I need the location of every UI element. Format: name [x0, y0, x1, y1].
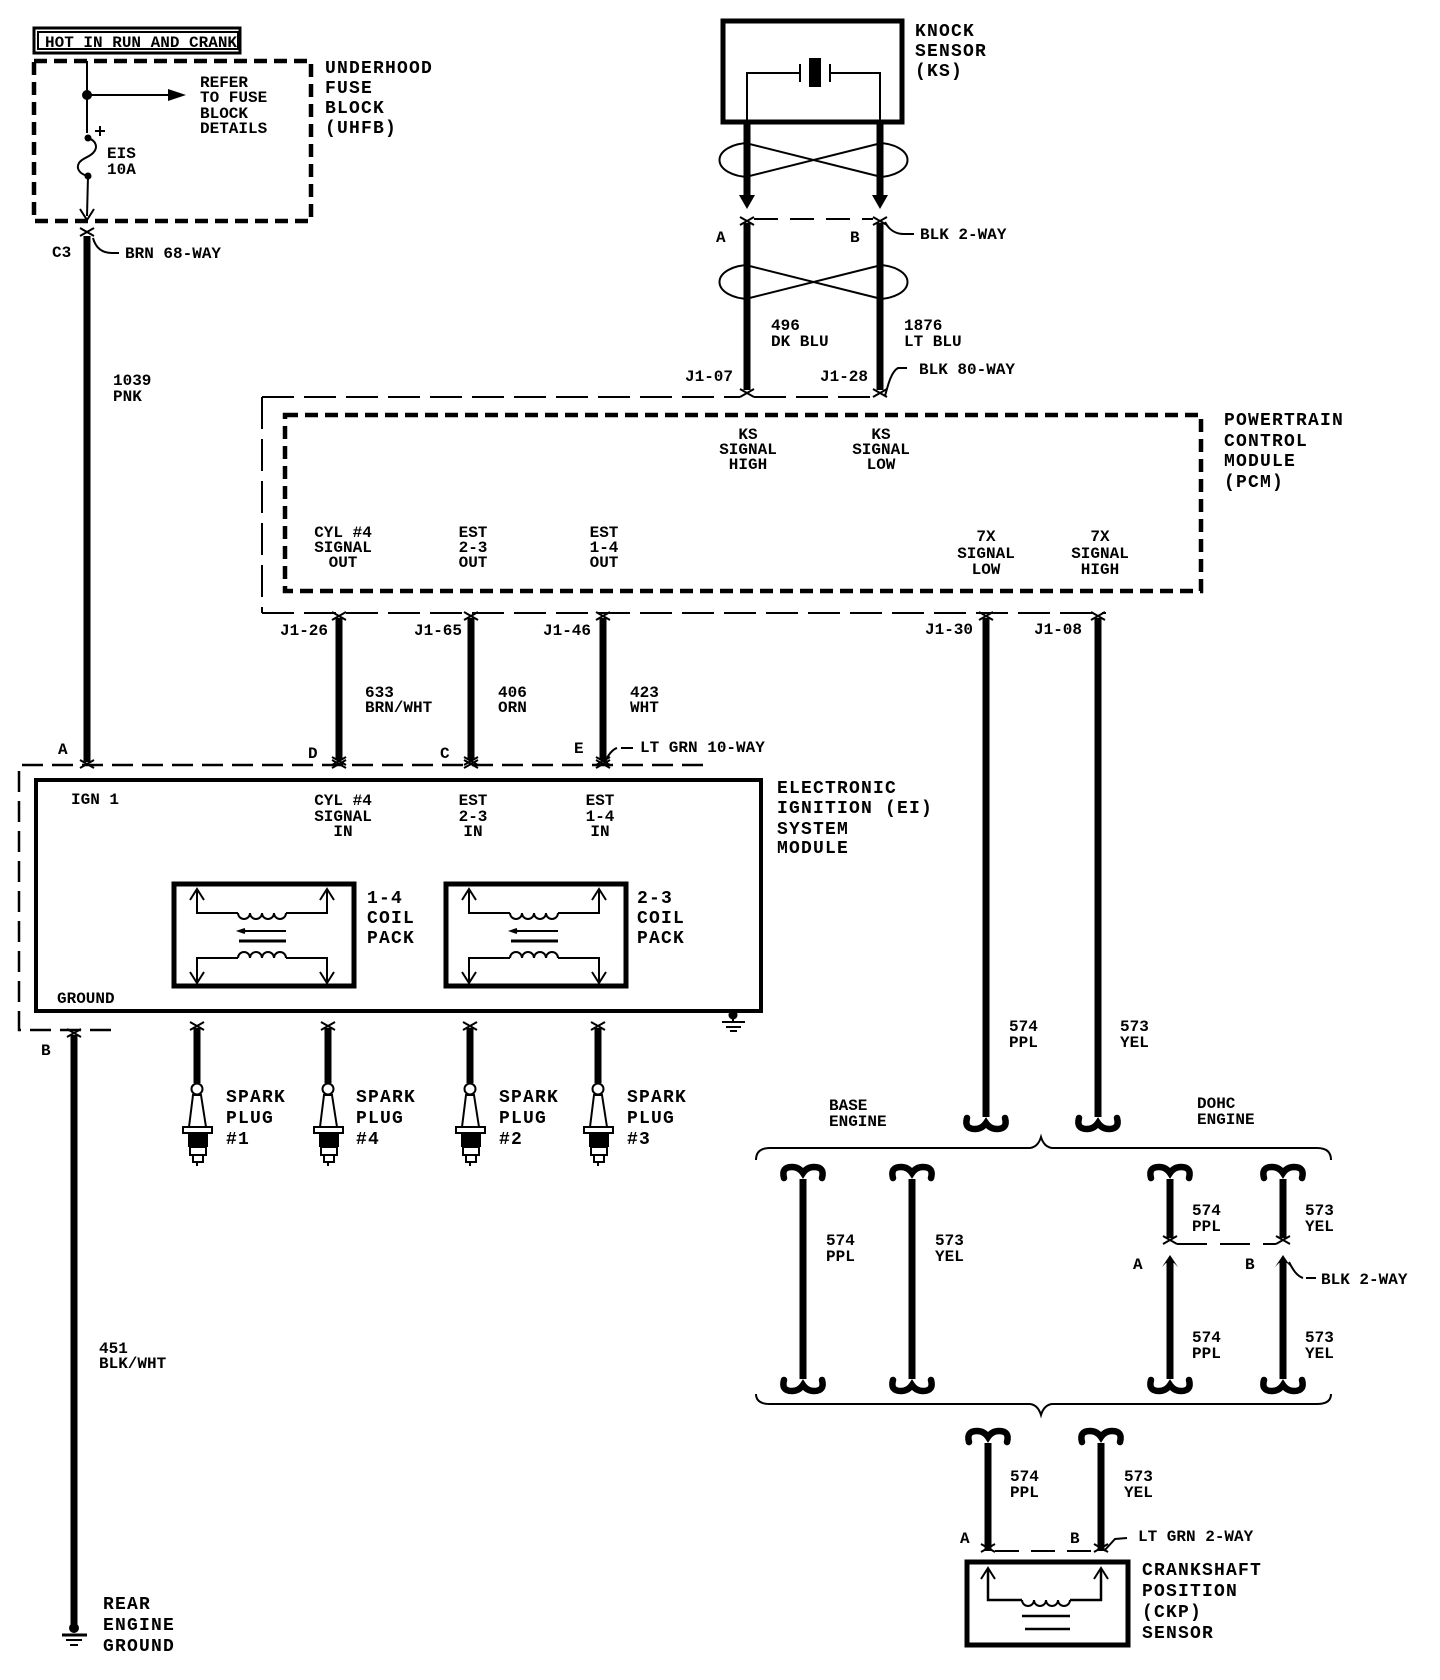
svg-text:J1-07: J1-07	[685, 368, 733, 386]
svg-text:BLK 2-WAY: BLK 2-WAY	[920, 226, 1007, 244]
svg-text:ORN: ORN	[498, 699, 527, 717]
svg-text:10A: 10A	[107, 161, 136, 179]
svg-text:PPL: PPL	[826, 1248, 855, 1266]
svg-text:HOT IN RUN AND CRANK: HOT IN RUN AND CRANK	[45, 34, 237, 52]
svg-text:LT GRN 10-WAY: LT GRN 10-WAY	[640, 739, 765, 757]
svg-text:YEL: YEL	[935, 1248, 964, 1266]
svg-text:IN: IN	[590, 823, 609, 841]
svg-text:B: B	[41, 1042, 51, 1060]
svg-text:SPARK: SPARK	[356, 1088, 416, 1108]
svg-text:PLUG: PLUG	[356, 1109, 404, 1129]
svg-text:MODULE: MODULE	[777, 839, 849, 859]
svg-text:7X: 7X	[976, 528, 996, 546]
svg-text:#2: #2	[499, 1130, 523, 1150]
svg-text:E: E	[574, 740, 584, 758]
svg-text:BLOCK: BLOCK	[325, 99, 385, 119]
svg-text:FUSE: FUSE	[325, 79, 373, 99]
svg-text:(CKP): (CKP)	[1142, 1603, 1202, 1623]
svg-text:BRN/WHT: BRN/WHT	[365, 699, 433, 717]
svg-text:C: C	[440, 745, 450, 763]
svg-text:PPL: PPL	[1192, 1218, 1221, 1236]
svg-text:PACK: PACK	[637, 929, 685, 949]
svg-text:ELECTRONIC: ELECTRONIC	[777, 779, 897, 799]
svg-text:B: B	[1245, 1256, 1255, 1274]
svg-text:1-4: 1-4	[367, 889, 403, 909]
svg-text:A: A	[960, 1530, 970, 1548]
svg-text:OUT: OUT	[590, 554, 619, 572]
svg-text:COIL: COIL	[367, 909, 415, 929]
svg-text:PPL: PPL	[1192, 1345, 1221, 1363]
svg-text:B: B	[1070, 1530, 1080, 1548]
svg-text:B: B	[850, 229, 860, 247]
svg-text:WHT: WHT	[630, 699, 659, 717]
svg-text:J1-26: J1-26	[280, 622, 328, 640]
svg-text:DETAILS: DETAILS	[200, 120, 268, 138]
svg-text:BLK/WHT: BLK/WHT	[99, 1355, 167, 1373]
svg-text:KNOCK: KNOCK	[915, 22, 975, 42]
svg-text:COIL: COIL	[637, 909, 685, 929]
svg-text:PNK: PNK	[113, 388, 142, 406]
svg-text:2-3: 2-3	[637, 889, 673, 909]
svg-text:DK BLU: DK BLU	[771, 333, 829, 351]
svg-text:SPARK: SPARK	[226, 1088, 286, 1108]
svg-text:C3: C3	[52, 244, 71, 262]
svg-text:LT BLU: LT BLU	[904, 333, 962, 351]
svg-text:SENSOR: SENSOR	[915, 42, 987, 62]
svg-text:HIGH: HIGH	[1081, 561, 1119, 579]
svg-text:J1-30: J1-30	[925, 621, 973, 639]
svg-text:POSITION: POSITION	[1142, 1582, 1238, 1602]
svg-text:HIGH: HIGH	[729, 456, 767, 474]
svg-text:YEL: YEL	[1305, 1218, 1334, 1236]
svg-text:MODULE: MODULE	[1224, 452, 1296, 472]
svg-text:PLUG: PLUG	[226, 1109, 274, 1129]
svg-text:OUT: OUT	[329, 554, 358, 572]
svg-text:SPARK: SPARK	[627, 1088, 687, 1108]
svg-text:(PCM): (PCM)	[1224, 473, 1284, 493]
svg-text:BLK 2-WAY: BLK 2-WAY	[1321, 1271, 1408, 1289]
svg-text:7X: 7X	[1090, 528, 1110, 546]
svg-text:UNDERHOOD: UNDERHOOD	[325, 59, 433, 79]
svg-text:A: A	[716, 229, 726, 247]
svg-text:IGN 1: IGN 1	[71, 791, 119, 809]
svg-text:J1-65: J1-65	[414, 622, 462, 640]
svg-text:GROUND: GROUND	[103, 1637, 175, 1657]
svg-text:SPARK: SPARK	[499, 1088, 559, 1108]
svg-text:A: A	[58, 741, 68, 759]
svg-text:PPL: PPL	[1010, 1484, 1039, 1502]
svg-text:#4: #4	[356, 1130, 380, 1150]
svg-text:(UHFB): (UHFB)	[325, 119, 397, 139]
svg-text:PLUG: PLUG	[627, 1109, 675, 1129]
svg-text:ENGINE: ENGINE	[829, 1113, 887, 1131]
svg-text:GROUND: GROUND	[57, 990, 115, 1008]
svg-text:D: D	[308, 745, 318, 763]
svg-text:J1-28: J1-28	[820, 368, 868, 386]
svg-text:POWERTRAIN: POWERTRAIN	[1224, 411, 1344, 431]
svg-text:(KS): (KS)	[915, 62, 963, 82]
svg-text:OUT: OUT	[459, 554, 488, 572]
svg-text:#1: #1	[226, 1130, 250, 1150]
svg-text:YEL: YEL	[1124, 1484, 1153, 1502]
svg-text:LT GRN 2-WAY: LT GRN 2-WAY	[1138, 1528, 1254, 1546]
svg-text:YEL: YEL	[1120, 1034, 1149, 1052]
svg-text:PACK: PACK	[367, 929, 415, 949]
svg-text:PLUG: PLUG	[499, 1109, 547, 1129]
svg-text:LOW: LOW	[867, 456, 896, 474]
svg-text:REAR: REAR	[103, 1595, 151, 1615]
svg-text:A: A	[1133, 1256, 1143, 1274]
svg-text:PPL: PPL	[1009, 1034, 1038, 1052]
svg-text:IN: IN	[333, 823, 352, 841]
svg-text:J1-08: J1-08	[1034, 621, 1082, 639]
svg-text:SENSOR: SENSOR	[1142, 1624, 1214, 1644]
svg-text:YEL: YEL	[1305, 1345, 1334, 1363]
svg-text:BRN 68-WAY: BRN 68-WAY	[125, 245, 221, 263]
svg-text:IN: IN	[463, 823, 482, 841]
svg-text:BLK 80-WAY: BLK 80-WAY	[919, 361, 1015, 379]
svg-text:#3: #3	[627, 1130, 651, 1150]
svg-text:ENGINE: ENGINE	[1197, 1111, 1255, 1129]
svg-text:CONTROL: CONTROL	[1224, 432, 1308, 452]
svg-text:CRANKSHAFT: CRANKSHAFT	[1142, 1561, 1262, 1581]
svg-text:LOW: LOW	[972, 561, 1001, 579]
svg-text:ENGINE: ENGINE	[103, 1616, 175, 1636]
svg-text:J1-46: J1-46	[543, 622, 591, 640]
svg-text:SYSTEM: SYSTEM	[777, 820, 849, 840]
svg-text:IGNITION (EI): IGNITION (EI)	[777, 799, 933, 819]
